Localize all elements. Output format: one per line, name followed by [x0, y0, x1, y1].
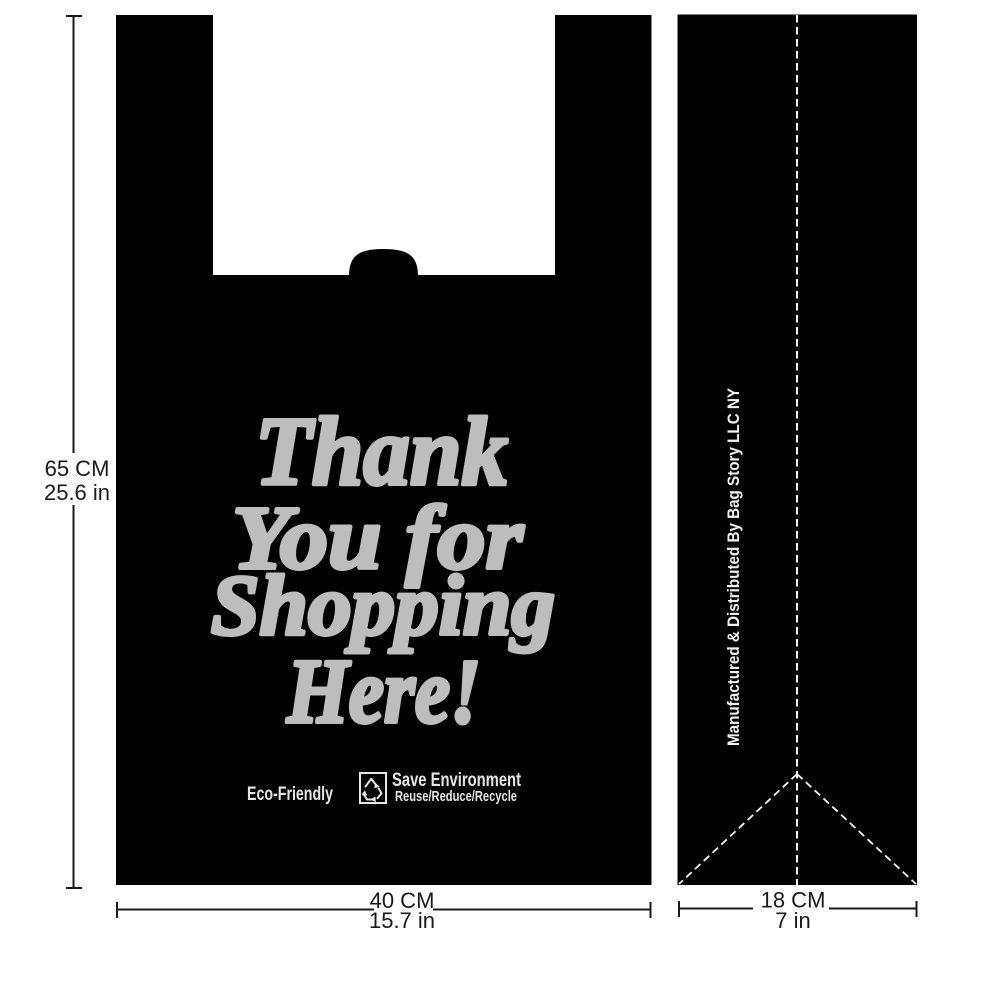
svg-text:Here!: Here! [286, 640, 481, 742]
svg-text:Reuse/Reduce/Recycle: Reuse/Reduce/Recycle [395, 788, 517, 805]
svg-text:25.6 in: 25.6 in [44, 480, 110, 505]
svg-text:Manufactured & Distributed By: Manufactured & Distributed By Bag Story … [724, 387, 743, 746]
svg-text:65 CM: 65 CM [45, 456, 110, 481]
svg-text:Eco-Friendly: Eco-Friendly [247, 783, 333, 805]
svg-text:7 in: 7 in [775, 908, 810, 933]
svg-text:Shopping: Shopping [211, 557, 555, 653]
svg-text:15.7 in: 15.7 in [369, 908, 435, 933]
